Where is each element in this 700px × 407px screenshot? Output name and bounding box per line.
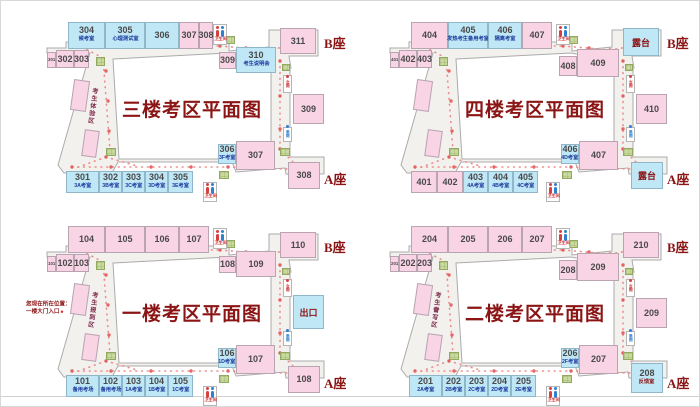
room-208: 208反馈室	[631, 363, 663, 393]
restroom-label: 卫生间	[557, 37, 570, 41]
room-110: 110	[280, 232, 316, 258]
quadrant-floor-1: 卫生间卫生间女厕男厕104105106107101102103108109110…	[6, 205, 356, 407]
stairs-icon	[623, 352, 633, 360]
room-number: 304	[79, 26, 94, 35]
room-number: 206	[562, 349, 577, 358]
room-102: 102备用考场	[99, 375, 122, 397]
room-101: 101备用考场	[66, 375, 99, 397]
room-number: 110	[291, 241, 306, 250]
quadrant-floor-2: 卫生间卫生间女厕男厕204205206207201202203208209210…	[349, 205, 699, 407]
room-205: 205	[448, 226, 488, 253]
area-terrace: 露台	[623, 28, 659, 56]
room-303: 3033C考室	[122, 171, 145, 193]
room-number: 102	[103, 377, 118, 386]
room-number: 106	[154, 235, 169, 244]
room-number: 109	[248, 260, 263, 269]
room-107: 107	[236, 345, 275, 374]
room-sublabel: 3C考室	[125, 183, 142, 188]
room-number: 403	[468, 173, 483, 182]
female-wc-label: 女厕	[629, 284, 633, 292]
female-figure-icon	[216, 30, 219, 37]
room-304: 3043D考室	[145, 171, 168, 193]
room-407: 407	[579, 141, 618, 170]
restroom-icons	[559, 26, 567, 37]
room-sublabel: 2E考室	[515, 387, 532, 392]
room-sublabel: 候考室	[79, 36, 95, 41]
room-sublabel: 考生说明会	[243, 61, 269, 66]
male-figure-icon	[564, 30, 567, 37]
room-number: 302	[57, 55, 72, 64]
female-wc-marker: 女厕	[626, 279, 635, 297]
male-wc-label: 男厕	[629, 334, 633, 342]
room-sublabel: 3D考室	[148, 183, 165, 188]
restroom-label: 卫生间	[204, 194, 217, 198]
room-308: 308	[288, 162, 320, 189]
stairs-icon	[623, 148, 633, 156]
stairs-icon	[226, 36, 235, 44]
room-number: 205	[460, 235, 475, 244]
room-sublabel: 3E考室	[172, 183, 189, 188]
restroom-icons	[206, 387, 214, 398]
room-203: 203	[417, 254, 432, 272]
room-number: 303	[126, 173, 141, 182]
room-109: 109	[236, 251, 276, 277]
room-number: 202	[400, 259, 415, 268]
area-terrace: 露台	[631, 162, 663, 189]
room-number: 207	[529, 235, 544, 244]
room-number: 305	[117, 26, 132, 35]
room-sublabel: 备用考场	[100, 387, 121, 392]
building-b-label: B座	[667, 237, 689, 256]
room-sublabel: 4C考室	[517, 183, 534, 188]
room-number: 405	[518, 173, 533, 182]
room-number: 401	[416, 178, 431, 187]
room-number: 406	[562, 145, 577, 154]
room-302: 3023B考室	[99, 171, 122, 193]
room-sublabel: 4B考室	[492, 183, 509, 188]
female-figure-icon	[549, 187, 552, 194]
stairs-icon	[562, 375, 572, 383]
room-sublabel: 1B考室	[148, 387, 165, 392]
restroom-box: 卫生间	[213, 228, 227, 249]
annotation-line-1: 您现在所在位置：	[26, 300, 71, 308]
room-306: 3063F考室	[218, 144, 236, 164]
room-210: 210	[623, 232, 659, 258]
female-figure-icon	[206, 391, 209, 398]
room-number: 108	[220, 260, 235, 269]
room-label: 出口	[299, 306, 317, 319]
room-number: 201	[418, 377, 433, 386]
room-309: 309	[219, 52, 236, 69]
room-number: 205	[516, 377, 531, 386]
room-101: 101	[47, 256, 56, 272]
restroom-label: 卫生间	[214, 37, 227, 41]
female-figure-icon	[216, 234, 219, 241]
room-202: 202	[399, 254, 417, 272]
restroom-icons	[559, 230, 567, 241]
room-number: 407	[591, 151, 606, 160]
room-number: 103	[126, 377, 141, 386]
room-105: 1051C考室	[168, 375, 193, 397]
room-number: 209	[644, 309, 659, 318]
room-sublabel: 发热考生备用考室	[447, 36, 489, 41]
female-wc-label: 女厕	[286, 284, 290, 292]
male-wc-marker: 男厕	[626, 331, 635, 346]
female-figure-icon	[559, 234, 562, 241]
room-209: 209	[577, 253, 619, 281]
room-number: 108	[296, 375, 311, 384]
room-301: 301	[47, 52, 56, 68]
room-406: 406隔离考室	[488, 22, 522, 49]
room-sublabel: 4A考室	[467, 183, 484, 188]
room-number: 402	[442, 178, 457, 187]
room-403: 4034A考室	[463, 171, 488, 193]
quadrant-floor-4: 卫生间卫生间女厕男厕404405发热考生备用考室406隔离考室407401402…	[349, 1, 699, 205]
room-204: 204	[411, 226, 448, 253]
room-number: 301	[75, 173, 90, 182]
room-206: 2062F考室	[561, 348, 579, 368]
area-exit: 出口	[293, 295, 324, 329]
female-wc-marker: 女厕	[283, 75, 292, 93]
room-410: 410	[636, 94, 667, 124]
floorplan-canvas: 卫生间卫生间女厕男厕304候考室305心理测试室3063073083013023…	[0, 0, 700, 407]
room-number: 107	[186, 235, 201, 244]
room-number: 307	[181, 31, 196, 40]
room-307: 307	[236, 141, 275, 170]
room-number: 209	[590, 263, 605, 272]
room-number: 305	[173, 173, 188, 182]
restroom-icons	[206, 183, 214, 194]
room-402: 402	[437, 171, 463, 193]
room-sublabel: 2F考室	[562, 359, 579, 364]
room-number: 311	[291, 37, 306, 46]
building-a-label: A座	[324, 169, 346, 188]
room-sublabel: 反馈室	[639, 379, 655, 384]
room-number: 301	[48, 58, 55, 62]
stairs-icon	[449, 352, 459, 360]
floor-title: 一楼考区平面图	[107, 299, 277, 326]
stairs-icon	[439, 57, 448, 66]
room-number: 410	[644, 105, 659, 114]
male-figure-icon	[554, 187, 557, 194]
room-number: 304	[149, 173, 164, 182]
stairs-icon	[280, 148, 290, 156]
room-106: 106	[145, 226, 179, 253]
stairs-icon	[562, 171, 572, 179]
female-figure-icon	[206, 187, 209, 194]
restroom-box: 卫生间	[203, 182, 217, 202]
room-208: 208	[559, 260, 577, 280]
restroom-box: 卫生间	[546, 386, 560, 406]
room-number: 204	[492, 377, 507, 386]
room-108: 108	[219, 256, 236, 273]
stairs-icon	[106, 352, 116, 360]
room-405: 405发热考生备用考室	[448, 22, 488, 49]
stairs-icon	[569, 36, 578, 44]
room-number: 104	[149, 377, 164, 386]
room-number: 105	[173, 377, 188, 386]
female-wc-marker: 女厕	[283, 279, 292, 297]
room-104: 104	[68, 226, 105, 253]
room-106: 1061D考室	[218, 348, 236, 368]
room-201: 201	[390, 256, 399, 272]
stairs-icon	[625, 268, 633, 275]
room-number: 309	[220, 56, 235, 65]
room-sublabel: 4D考室	[561, 155, 578, 160]
room-number: 201	[391, 262, 398, 266]
room-311: 311	[280, 28, 316, 54]
stairs-icon	[219, 171, 229, 179]
building-b-label: B座	[324, 237, 346, 256]
restroom-box: 卫生间	[556, 24, 570, 45]
stairs-icon	[106, 148, 116, 156]
room-302: 302	[56, 50, 74, 68]
room-number: 401	[391, 58, 398, 62]
quadrant-floor-3: 卫生间卫生间女厕男厕304候考室305心理测试室3063073083013023…	[6, 1, 356, 205]
room-207: 207	[522, 226, 552, 253]
room-207: 207	[579, 345, 618, 374]
room-409: 409	[577, 49, 619, 77]
room-401: 401	[411, 171, 437, 193]
room-301: 3013A考室	[66, 171, 99, 193]
room-number: 309	[301, 105, 316, 114]
floor-title: 四楼考区平面图	[450, 95, 620, 122]
annotation-line-2: 一楼大门入口	[26, 308, 59, 314]
building-a-label: A座	[324, 373, 346, 392]
room-309: 309	[293, 94, 324, 124]
room-104: 1041B考室	[145, 375, 168, 397]
restroom-label: 卫生间	[214, 241, 227, 245]
annotation-line-2-wrap: 一楼大门入口	[26, 308, 71, 316]
room-number: 107	[248, 355, 263, 364]
room-305: 305心理测试室	[105, 22, 145, 49]
stairs-icon	[282, 64, 290, 71]
male-figure-icon	[211, 187, 214, 194]
room-sublabel: 3B考室	[102, 183, 119, 188]
restroom-icons	[216, 26, 224, 37]
room-sublabel: 1C考室	[172, 387, 189, 392]
restroom-box: 卫生间	[546, 182, 560, 202]
room-310: 310考生说明会	[236, 47, 276, 73]
room-number: 210	[633, 241, 648, 250]
room-number: 404	[493, 173, 508, 182]
room-sublabel: 备用考场	[72, 387, 93, 392]
room-sublabel: 3A考室	[74, 183, 91, 188]
room-number: 307	[248, 151, 263, 160]
restroom-box: 卫生间	[203, 386, 217, 406]
room-108: 108	[288, 366, 320, 393]
you-are-here-annotation: 您现在所在位置：一楼大门入口	[26, 300, 71, 315]
room-403: 403	[417, 50, 432, 68]
room-306: 306	[145, 22, 179, 49]
room-sublabel: 2C考室	[468, 387, 485, 392]
male-figure-icon	[554, 391, 557, 398]
room-sublabel: 1D考室	[218, 359, 235, 364]
room-number: 302	[103, 173, 118, 182]
female-figure-icon	[559, 30, 562, 37]
restroom-icons	[549, 183, 557, 194]
room-sublabel: 心理测试室	[112, 36, 138, 41]
building-a-label: A座	[667, 373, 689, 392]
male-figure-icon	[221, 30, 224, 37]
restroom-label: 卫生间	[557, 241, 570, 245]
room-sublabel: 2A考室	[417, 387, 434, 392]
stairs-icon	[439, 261, 448, 270]
room-206: 206	[488, 226, 522, 253]
room-number: 303	[74, 55, 89, 64]
room-105: 105	[105, 226, 145, 253]
female-wc-label: 女厕	[629, 80, 633, 88]
room-sublabel: 1A考室	[125, 387, 142, 392]
male-figure-icon	[221, 234, 224, 241]
room-304: 304候考室	[68, 22, 105, 49]
restroom-label: 卫生间	[204, 398, 217, 402]
room-number: 101	[48, 262, 55, 266]
male-wc-marker: 男厕	[283, 127, 292, 142]
room-number: 403	[417, 55, 432, 64]
restroom-icons	[549, 387, 557, 398]
room-number: 408	[560, 62, 575, 71]
room-204: 2042D考室	[488, 375, 511, 397]
room-number: 104	[79, 235, 94, 244]
female-wc-label: 女厕	[286, 80, 290, 88]
male-wc-marker: 男厕	[283, 331, 292, 346]
room-sublabel: 2D考室	[491, 387, 508, 392]
room-406: 4064D考室	[561, 144, 579, 164]
room-number: 406	[497, 26, 512, 35]
stairs-icon	[280, 352, 290, 360]
room-402: 402	[399, 50, 417, 68]
room-203: 2032C考室	[465, 375, 488, 397]
male-figure-icon	[564, 234, 567, 241]
room-number: 306	[154, 31, 169, 40]
room-205: 2052E考室	[511, 375, 536, 397]
building-a-label: A座	[667, 169, 689, 188]
room-number: 203	[417, 259, 432, 268]
room-201: 2012A考室	[409, 375, 442, 397]
room-107: 107	[179, 226, 209, 253]
male-wc-label: 男厕	[629, 130, 633, 138]
restroom-label: 卫生间	[547, 194, 560, 198]
room-303: 303	[74, 50, 89, 68]
restroom-box: 卫生间	[213, 24, 227, 45]
room-number: 308	[198, 31, 213, 40]
stairs-icon	[96, 57, 105, 66]
building-b-label: B座	[324, 33, 346, 52]
male-wc-label: 男厕	[286, 130, 290, 138]
room-209: 209	[636, 298, 667, 328]
room-404: 4044B考室	[488, 171, 513, 193]
room-308: 308	[199, 22, 213, 49]
room-number: 308	[296, 171, 311, 180]
room-number: 203	[469, 377, 484, 386]
male-wc-label: 男厕	[286, 334, 290, 342]
female-figure-icon	[549, 391, 552, 398]
room-102: 102	[56, 254, 74, 272]
male-wc-marker: 男厕	[626, 127, 635, 142]
stairs-icon	[449, 148, 459, 156]
stairs-icon	[625, 64, 633, 71]
room-305: 3053E考室	[168, 171, 193, 193]
room-number: 106	[219, 349, 234, 358]
room-405: 4054C考室	[513, 171, 538, 193]
room-407: 407	[522, 22, 552, 49]
room-number: 404	[422, 31, 437, 40]
stairs-icon	[226, 240, 235, 248]
floor-title: 二楼考区平面图	[450, 299, 620, 326]
room-103: 103	[74, 254, 89, 272]
room-number: 405	[460, 26, 475, 35]
room-number: 206	[497, 235, 512, 244]
room-number: 208	[560, 266, 575, 275]
room-307: 307	[179, 22, 199, 49]
room-number: 101	[75, 377, 90, 386]
restroom-label: 卫生间	[547, 398, 560, 402]
stairs-icon	[219, 375, 229, 383]
restroom-box: 卫生间	[556, 228, 570, 249]
room-sublabel: 2B考室	[445, 387, 462, 392]
room-number: 208	[639, 369, 654, 378]
room-number: 207	[591, 355, 606, 364]
room-103: 1031A考室	[122, 375, 145, 397]
room-408: 408	[559, 56, 577, 76]
floor-title: 三楼考区平面图	[107, 95, 277, 122]
stairs-icon	[569, 240, 578, 248]
male-figure-icon	[211, 391, 214, 398]
room-number: 105	[117, 235, 132, 244]
room-number: 409	[590, 59, 605, 68]
room-202: 2022B考室	[442, 375, 465, 397]
room-number: 310	[248, 51, 263, 60]
room-sublabel: 3F考室	[219, 155, 236, 160]
room-number: 402	[400, 55, 415, 64]
room-number: 102	[57, 259, 72, 268]
stairs-icon	[96, 261, 105, 270]
room-label: 露台	[632, 36, 650, 49]
room-number: 306	[219, 145, 234, 154]
stairs-icon	[282, 268, 290, 275]
room-number: 204	[422, 235, 437, 244]
room-number: 103	[74, 259, 89, 268]
restroom-icons	[216, 230, 224, 241]
female-wc-marker: 女厕	[626, 75, 635, 93]
room-sublabel: 隔离考室	[495, 36, 516, 41]
room-404: 404	[411, 22, 448, 49]
room-401: 401	[390, 52, 399, 68]
room-number: 407	[529, 31, 544, 40]
location-dot-icon	[61, 311, 63, 313]
building-b-label: B座	[667, 33, 689, 52]
room-number: 202	[446, 377, 461, 386]
room-label: 露台	[638, 169, 656, 182]
